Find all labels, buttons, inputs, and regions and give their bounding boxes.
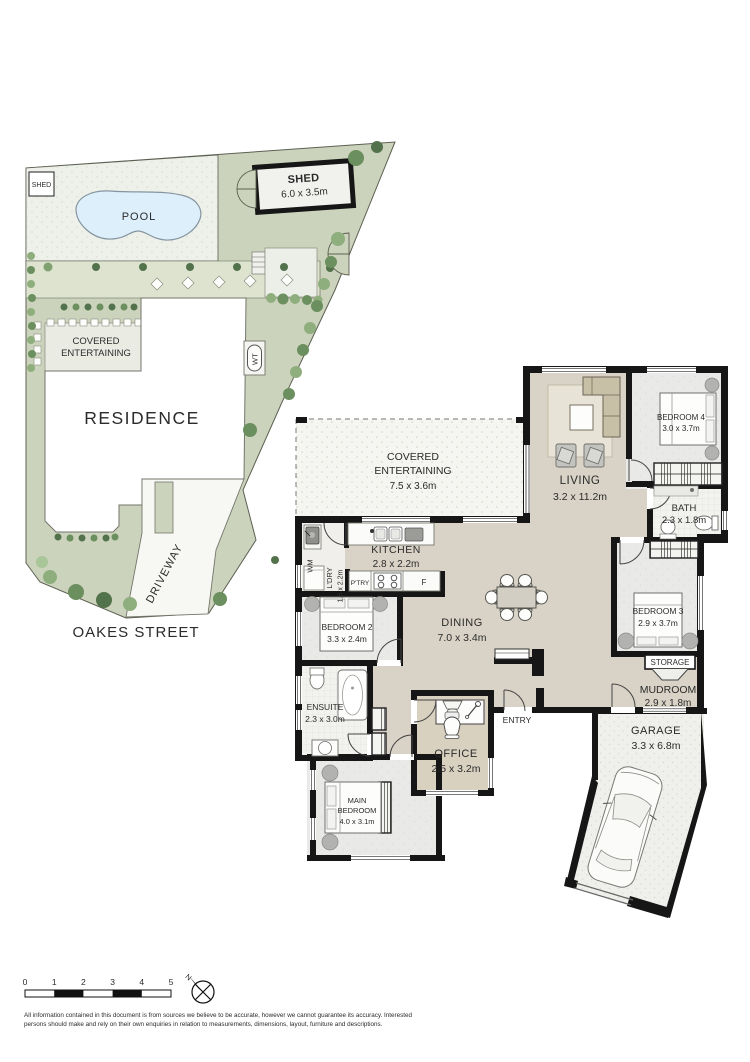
svg-text:3.3 x 2.4m: 3.3 x 2.4m <box>327 634 367 644</box>
svg-text:3.2 x 11.2m: 3.2 x 11.2m <box>553 491 607 503</box>
svg-text:BEDROOM: BEDROOM <box>338 806 377 815</box>
svg-text:ENTERTAINING: ENTERTAINING <box>374 465 451 477</box>
svg-text:5: 5 <box>169 977 174 987</box>
svg-text:1.5 x 2.2m: 1.5 x 2.2m <box>338 569 345 602</box>
svg-text:OAKES STREET: OAKES STREET <box>72 624 199 641</box>
svg-text:BEDROOM 4: BEDROOM 4 <box>657 413 706 422</box>
svg-text:4.0 x 3.1m: 4.0 x 3.1m <box>339 817 374 826</box>
svg-text:BEDROOM 3: BEDROOM 3 <box>632 606 683 616</box>
svg-text:2.3 x 3.0m: 2.3 x 3.0m <box>305 714 345 724</box>
svg-text:2.8 x 2.2m: 2.8 x 2.2m <box>373 559 420 570</box>
svg-text:SHED: SHED <box>32 182 51 189</box>
svg-text:persons should make and rely o: persons should make and rely on their ow… <box>24 1021 383 1028</box>
svg-text:OFFICE: OFFICE <box>434 748 477 760</box>
svg-text:STORAGE: STORAGE <box>651 658 690 667</box>
svg-text:2.5 x 3.2m: 2.5 x 3.2m <box>431 763 480 775</box>
svg-text:WM: WM <box>306 559 315 572</box>
svg-text:WT: WT <box>251 353 260 365</box>
svg-text:DINING: DINING <box>441 617 483 629</box>
svg-text:MAIN: MAIN <box>348 796 367 805</box>
svg-text:BEDROOM 2: BEDROOM 2 <box>321 622 372 632</box>
svg-text:3.3 x 6.8m: 3.3 x 6.8m <box>631 740 680 752</box>
svg-text:COVERED: COVERED <box>387 451 439 463</box>
svg-text:SHED: SHED <box>287 172 320 186</box>
svg-text:KITCHEN: KITCHEN <box>371 544 421 556</box>
svg-text:L'DRY: L'DRY <box>325 567 334 588</box>
svg-text:F: F <box>422 578 427 587</box>
svg-text:COVERED: COVERED <box>73 336 120 347</box>
svg-text:P'TRY: P'TRY <box>351 580 370 587</box>
svg-text:ENTERTAINING: ENTERTAINING <box>61 348 131 359</box>
svg-text:4: 4 <box>139 977 144 987</box>
svg-text:3: 3 <box>110 977 115 987</box>
svg-text:GARAGE: GARAGE <box>631 725 681 737</box>
svg-text:2.3 x 1.8m: 2.3 x 1.8m <box>662 515 706 526</box>
svg-text:7.5 x 3.6m: 7.5 x 3.6m <box>390 481 437 492</box>
svg-text:ENSUITE: ENSUITE <box>307 702 344 712</box>
svg-text:MUDROOM: MUDROOM <box>640 684 697 696</box>
svg-text:BATH: BATH <box>672 503 697 514</box>
svg-text:RESIDENCE: RESIDENCE <box>84 408 200 428</box>
svg-text:All information contained in t: All information contained in this docume… <box>24 1012 413 1019</box>
svg-text:7.0 x 3.4m: 7.0 x 3.4m <box>437 632 486 644</box>
svg-text:0: 0 <box>23 977 28 987</box>
svg-text:ENTRY: ENTRY <box>503 715 532 725</box>
svg-text:2.9 x 3.7m: 2.9 x 3.7m <box>638 618 678 628</box>
svg-text:3.0 x 3.7m: 3.0 x 3.7m <box>662 424 700 433</box>
svg-text:2.9 x 1.8m: 2.9 x 1.8m <box>645 698 692 709</box>
svg-text:POOL: POOL <box>122 211 157 223</box>
svg-text:1: 1 <box>52 977 57 987</box>
svg-text:LIVING: LIVING <box>560 475 601 487</box>
svg-text:2: 2 <box>81 977 86 987</box>
